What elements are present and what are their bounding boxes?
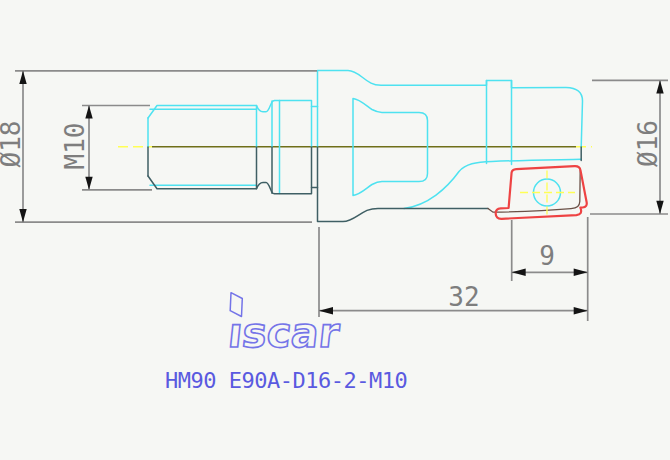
dim-label-cutting-diameter: Ø16: [633, 120, 663, 167]
arrow-down: [656, 201, 663, 214]
dimension-cutting-diameter: Ø16: [590, 80, 668, 214]
arrow-up: [19, 71, 26, 84]
part-number: HM90 E90A-D16-2-M10: [165, 368, 407, 393]
dim-label-thread-size: M10: [60, 123, 90, 170]
iscar-logo-wordmark: ıscar: [226, 309, 342, 357]
arrow-down: [85, 177, 92, 190]
arrow-up: [656, 80, 663, 93]
arrow-right: [574, 269, 588, 277]
dimension-insert-edge-length: 9: [512, 217, 588, 321]
cad-drawing-canvas: Ø18 M10 Ø16 9: [0, 0, 670, 460]
tool-body-outline-bottom: [148, 147, 581, 222]
arrow-down: [19, 209, 26, 222]
tool-drawing-svg: Ø18 M10 Ø16 9: [0, 0, 670, 460]
arrow-right: [574, 307, 588, 315]
dim-label-reach-length: 32: [448, 282, 479, 312]
dimension-thread-size: M10: [60, 106, 153, 190]
iscar-logo: ıscar: [226, 293, 342, 357]
dim-label-insert-edge-length: 9: [539, 241, 555, 271]
tool-body-outline-top: [148, 71, 583, 209]
dim-label-shank-diameter: Ø18: [0, 121, 26, 168]
arrow-left: [512, 269, 526, 277]
arrow-up: [85, 106, 92, 119]
